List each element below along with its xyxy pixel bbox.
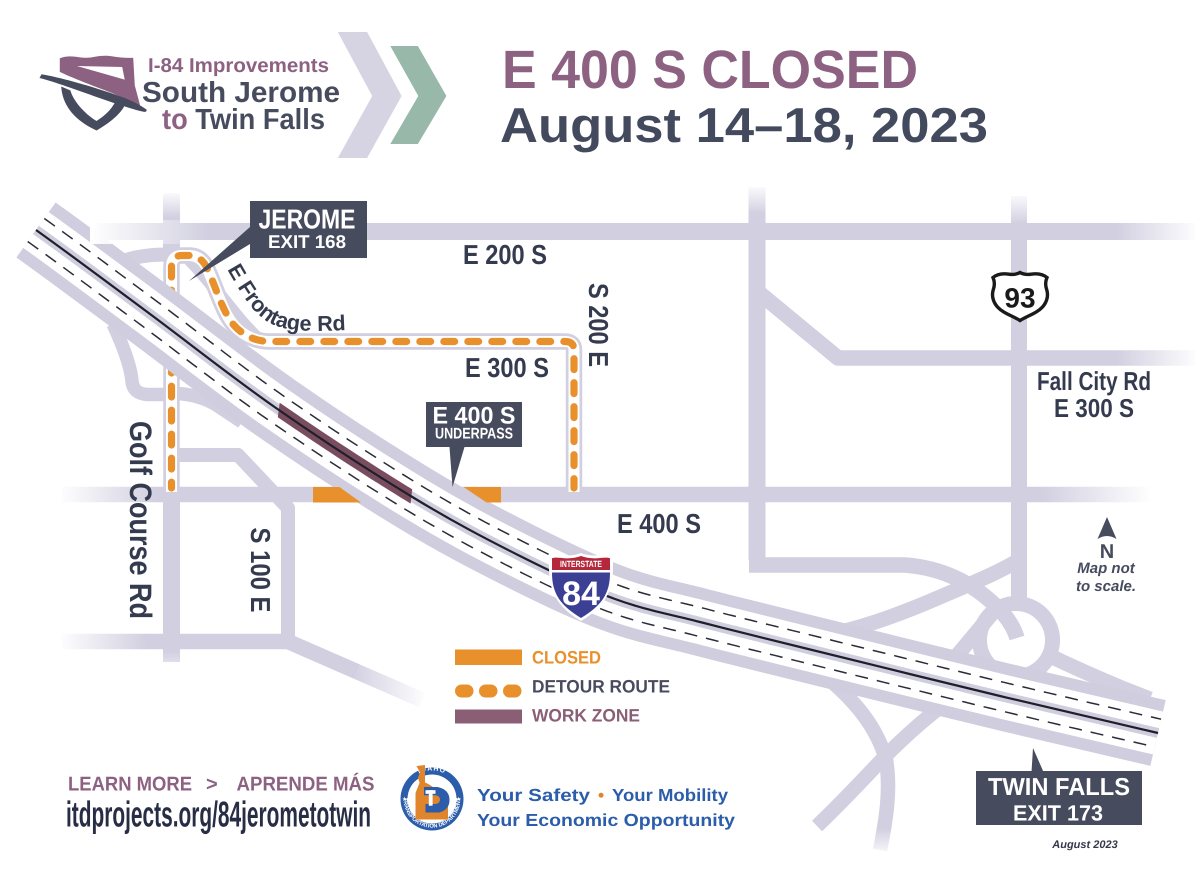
svg-text:84: 84 xyxy=(562,575,600,613)
svg-text:93: 93 xyxy=(1004,283,1035,314)
svg-text:WORK ZONE: WORK ZONE xyxy=(532,706,640,726)
svg-text:Your Safety: Your Safety xyxy=(477,785,590,805)
svg-text:CLOSED: CLOSED xyxy=(532,648,601,668)
svg-text:>: > xyxy=(206,774,218,796)
svg-text:★: ★ xyxy=(402,796,407,803)
svg-text:LEARN MORE: LEARN MORE xyxy=(68,774,192,796)
svg-text:INTERSTATE: INTERSTATE xyxy=(560,559,602,569)
svg-text:itdprojects.org/84jerometotwin: itdprojects.org/84jerometotwin xyxy=(66,794,371,835)
svg-text:Golf Course Rd: Golf Course Rd xyxy=(123,421,158,619)
svg-text:DETOUR ROUTE: DETOUR ROUTE xyxy=(532,677,670,697)
svg-text:E 300 S: E 300 S xyxy=(1054,393,1134,423)
svg-text:TWIN FALLS: TWIN FALLS xyxy=(988,774,1130,801)
svg-text:S 100 E: S 100 E xyxy=(245,528,276,613)
svg-text:to Twin Falls: to Twin Falls xyxy=(162,104,325,136)
svg-text:S 200 E: S 200 E xyxy=(583,283,614,367)
svg-text:★: ★ xyxy=(456,796,461,803)
svg-text:APRENDE MÁS: APRENDE MÁS xyxy=(237,773,375,796)
svg-text:EXIT 168: EXIT 168 xyxy=(268,231,346,252)
svg-text:E 400 S CLOSED: E 400 S CLOSED xyxy=(502,40,918,100)
svg-text:Your Mobility: Your Mobility xyxy=(612,785,728,805)
svg-text:August 14–18, 2023: August 14–18, 2023 xyxy=(500,99,988,153)
svg-text:Fall City Rd: Fall City Rd xyxy=(1037,366,1151,396)
svg-text:E 200 S: E 200 S xyxy=(463,239,547,270)
svg-text:I-84 Improvements: I-84 Improvements xyxy=(148,55,329,77)
svg-text:E 300 S: E 300 S xyxy=(465,352,549,383)
svg-text:to scale.: to scale. xyxy=(1076,578,1136,595)
svg-text:•: • xyxy=(598,785,604,805)
svg-text:Map not: Map not xyxy=(1077,560,1135,577)
svg-text:August 2023: August 2023 xyxy=(1051,839,1117,851)
svg-text:JEROME: JEROME xyxy=(259,204,356,235)
svg-text:EXIT 173: EXIT 173 xyxy=(1013,801,1103,826)
svg-text:E 400 S: E 400 S xyxy=(617,508,701,539)
svg-text:UNDERPASS: UNDERPASS xyxy=(435,426,513,443)
svg-text:Your Economic Opportunity: Your Economic Opportunity xyxy=(477,810,735,830)
